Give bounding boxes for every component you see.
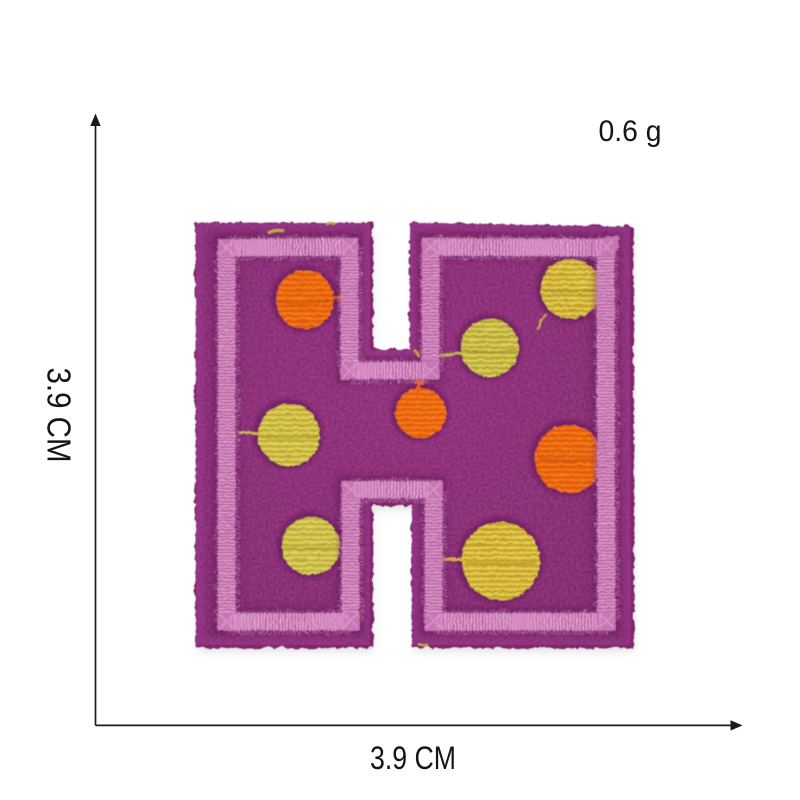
svg-text:0.6 g: 0.6 g bbox=[599, 115, 662, 148]
svg-text:3.9 CM: 3.9 CM bbox=[370, 740, 456, 776]
svg-text:3.9 CM: 3.9 CM bbox=[41, 368, 78, 463]
